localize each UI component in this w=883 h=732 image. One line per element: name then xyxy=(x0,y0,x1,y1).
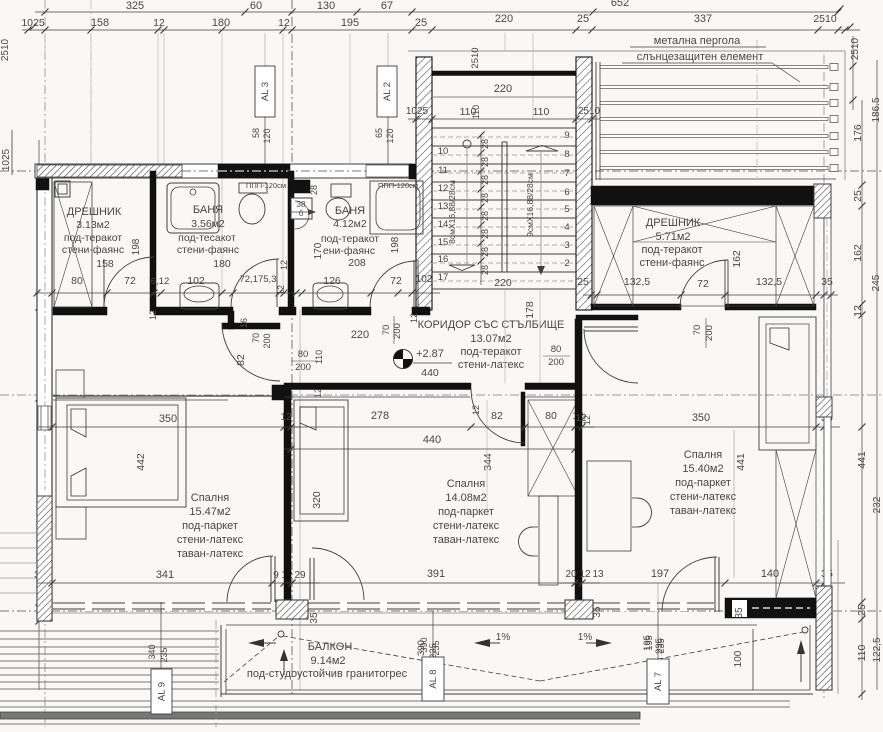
svg-text:200: 200 xyxy=(262,333,272,348)
svg-text:13: 13 xyxy=(592,569,604,580)
svg-text:208: 208 xyxy=(348,257,366,269)
svg-text:278: 278 xyxy=(371,410,389,422)
svg-text:под-теракот: под-теракот xyxy=(460,346,521,358)
svg-text:12: 12 xyxy=(153,17,165,29)
svg-text:8смХ16,88/28см: 8смХ16,88/28см xyxy=(447,180,457,244)
svg-text:35: 35 xyxy=(309,612,320,624)
svg-text:9: 9 xyxy=(564,130,569,141)
svg-text:120: 120 xyxy=(262,128,272,143)
svg-text:442: 442 xyxy=(135,453,147,471)
svg-text:12: 12 xyxy=(471,405,481,415)
svg-text:AL 7: AL 7 xyxy=(653,672,664,691)
svg-text:35: 35 xyxy=(821,276,833,288)
svg-text:6,12: 6,12 xyxy=(151,276,170,287)
svg-text:2510: 2510 xyxy=(578,106,601,117)
svg-text:35: 35 xyxy=(734,607,745,619)
svg-text:70: 70 xyxy=(692,325,703,336)
svg-text:158: 158 xyxy=(91,17,109,29)
svg-text:12: 12 xyxy=(280,412,292,423)
svg-text:67: 67 xyxy=(381,0,393,12)
svg-text:12: 12 xyxy=(148,310,158,320)
svg-text:102: 102 xyxy=(416,274,433,285)
svg-text:652: 652 xyxy=(611,0,629,9)
svg-text:28: 28 xyxy=(480,229,490,239)
svg-text:1%: 1% xyxy=(578,632,593,643)
svg-text:110: 110 xyxy=(471,105,481,119)
svg-text:2: 2 xyxy=(564,258,569,269)
svg-text:220: 220 xyxy=(494,83,512,95)
svg-text:82: 82 xyxy=(491,410,503,422)
svg-text:3.56м2: 3.56м2 xyxy=(191,218,225,230)
svg-text:БАНЯ: БАНЯ xyxy=(193,204,223,216)
svg-text:176: 176 xyxy=(852,124,864,142)
svg-text:390: 390 xyxy=(419,637,429,652)
svg-text:под-теракот: под-теракот xyxy=(641,244,702,256)
svg-text:70: 70 xyxy=(381,325,392,336)
svg-text:337: 337 xyxy=(694,13,712,25)
svg-text:180: 180 xyxy=(212,17,230,29)
svg-text:132,5: 132,5 xyxy=(624,276,650,288)
svg-text:метална пергола: метална пергола xyxy=(654,35,741,47)
svg-text:162: 162 xyxy=(731,250,743,268)
svg-text:80: 80 xyxy=(545,410,557,422)
svg-text:БАЛКОН: БАЛКОН xyxy=(308,641,353,653)
svg-text:б: б xyxy=(299,209,304,218)
svg-text:3: 3 xyxy=(564,240,569,251)
svg-text:28: 28 xyxy=(480,265,490,275)
svg-text:110: 110 xyxy=(533,106,550,118)
svg-text:9смХ16,88/28см: 9смХ16,88/28см xyxy=(525,173,535,237)
svg-text:таван-латекс: таван-латекс xyxy=(177,548,244,560)
svg-text:441: 441 xyxy=(735,453,747,471)
svg-text:2510: 2510 xyxy=(0,38,11,61)
svg-text:таван-латекс: таван-латекс xyxy=(670,505,737,517)
svg-text:200: 200 xyxy=(392,323,403,339)
svg-text:под-тесакот: под-тесакот xyxy=(178,232,236,244)
svg-text:1025: 1025 xyxy=(1,148,12,171)
svg-text:2510: 2510 xyxy=(470,47,481,68)
svg-text:под-паркет: под-паркет xyxy=(182,520,238,532)
svg-text:198: 198 xyxy=(390,236,401,253)
svg-text:235: 235 xyxy=(656,638,666,653)
svg-text:ДРЕШНИК: ДРЕШНИК xyxy=(67,206,122,218)
svg-text:стени-фаянс: стени-фаянс xyxy=(177,244,239,256)
svg-text:БАНЯ: БАНЯ xyxy=(335,205,365,217)
svg-text:25: 25 xyxy=(415,17,427,29)
svg-text:235: 235 xyxy=(159,647,169,662)
svg-text:341: 341 xyxy=(156,569,174,581)
svg-text:195: 195 xyxy=(341,17,359,29)
svg-text:25: 25 xyxy=(577,13,589,25)
svg-text:ППП-120см: ППП-120см xyxy=(246,181,286,190)
svg-text:ДРЕШНИК: ДРЕШНИК xyxy=(646,217,701,229)
svg-text:178: 178 xyxy=(524,301,536,319)
svg-text:25: 25 xyxy=(856,604,868,616)
svg-text:Спалня: Спалня xyxy=(447,478,486,490)
svg-text:70: 70 xyxy=(251,333,261,343)
svg-text:5.71м2: 5.71м2 xyxy=(655,231,690,243)
svg-text:AL 8: AL 8 xyxy=(428,669,439,688)
svg-text:235: 235 xyxy=(431,640,441,655)
svg-text:72: 72 xyxy=(390,275,402,287)
svg-text:132,5: 132,5 xyxy=(756,276,782,288)
svg-text:16: 16 xyxy=(239,318,249,328)
svg-text:3.13м2: 3.13м2 xyxy=(76,219,110,231)
svg-text:под-теракот: под-теракот xyxy=(321,233,379,245)
svg-text:245: 245 xyxy=(871,274,882,291)
svg-text:28: 28 xyxy=(480,193,490,203)
svg-text:под-паркет: под-паркет xyxy=(675,477,731,489)
svg-text:14.08м2: 14.08м2 xyxy=(445,492,486,504)
svg-text:72,175,3: 72,175,3 xyxy=(240,274,277,285)
svg-text:8: 8 xyxy=(564,149,569,160)
svg-text:197: 197 xyxy=(651,568,669,580)
svg-text:80: 80 xyxy=(298,349,309,360)
svg-text:1025: 1025 xyxy=(21,17,45,29)
svg-text:КОРИДОР СЪС СТЪЛБИЩЕ: КОРИДОР СЪС СТЪЛБИЩЕ xyxy=(418,319,565,331)
svg-text:2510: 2510 xyxy=(850,37,861,60)
svg-text:Спалня: Спалня xyxy=(191,492,230,504)
svg-text:12: 12 xyxy=(582,415,592,425)
svg-text:325: 325 xyxy=(126,0,144,12)
svg-text:58: 58 xyxy=(251,128,261,138)
svg-text:7: 7 xyxy=(564,168,569,179)
svg-text:4.12м2: 4.12м2 xyxy=(333,218,367,230)
svg-text:15.40м2: 15.40м2 xyxy=(682,463,723,475)
svg-text:441: 441 xyxy=(856,451,868,469)
svg-text:80: 80 xyxy=(551,344,562,355)
svg-text:стени-фаянс: стени-фаянс xyxy=(62,244,124,256)
svg-text:Спалня: Спалня xyxy=(684,449,723,461)
svg-text:80: 80 xyxy=(71,275,83,287)
svg-text:13.07м2: 13.07м2 xyxy=(470,333,511,345)
svg-text:12: 12 xyxy=(279,260,289,270)
svg-text:20: 20 xyxy=(565,569,577,580)
svg-text:170: 170 xyxy=(313,242,324,259)
svg-text:стени-латекс: стени-латекс xyxy=(177,534,244,546)
svg-text:140: 140 xyxy=(761,568,779,580)
svg-text:25: 25 xyxy=(577,276,589,288)
svg-text:180: 180 xyxy=(213,258,231,270)
svg-text:100: 100 xyxy=(733,650,744,667)
svg-text:350: 350 xyxy=(692,412,710,424)
svg-text:200: 200 xyxy=(704,325,715,341)
svg-text:стени-латекс: стени-латекс xyxy=(433,520,500,532)
svg-text:ени-фаянс: ени-фаянс xyxy=(323,245,375,257)
svg-text:стени-латекс: стени-латекс xyxy=(670,491,737,503)
svg-text:344: 344 xyxy=(482,453,494,471)
svg-text:25: 25 xyxy=(852,190,864,202)
svg-text:391: 391 xyxy=(427,568,445,580)
svg-text:1025: 1025 xyxy=(406,106,429,117)
svg-text:4: 4 xyxy=(564,222,569,233)
svg-text:126: 126 xyxy=(323,275,341,287)
svg-text:110: 110 xyxy=(314,350,324,364)
svg-text:35: 35 xyxy=(592,606,603,618)
svg-text:28: 28 xyxy=(480,175,490,185)
svg-text:12: 12 xyxy=(579,569,591,580)
svg-text:122,5: 122,5 xyxy=(872,637,883,662)
svg-text:440: 440 xyxy=(421,367,439,379)
svg-text:28: 28 xyxy=(309,185,319,195)
svg-text:стени-латекс: стени-латекс xyxy=(458,359,525,371)
svg-text:220: 220 xyxy=(351,329,369,341)
svg-text:232: 232 xyxy=(872,496,883,513)
svg-text:28: 28 xyxy=(480,211,490,221)
svg-text:28: 28 xyxy=(480,247,490,257)
svg-text:102: 102 xyxy=(187,275,205,287)
svg-text:220: 220 xyxy=(494,277,512,289)
svg-text:12: 12 xyxy=(278,17,290,29)
svg-text:под-паркет: под-паркет xyxy=(438,506,494,518)
svg-text:120: 120 xyxy=(385,128,395,143)
svg-text:340: 340 xyxy=(147,644,157,659)
svg-text:слънцезащитен елемент: слънцезащитен елемент xyxy=(637,51,764,63)
svg-text:28: 28 xyxy=(480,157,490,167)
svg-text:200: 200 xyxy=(548,357,564,368)
svg-text:таван-латекс: таван-латекс xyxy=(433,534,500,546)
svg-text:под-студоустойчив гранитогрес: под-студоустойчив гранитогрес xyxy=(247,668,408,680)
svg-text:158: 158 xyxy=(96,258,114,270)
svg-text:10: 10 xyxy=(438,146,449,157)
svg-text:стени-фаянс: стени-фаянс xyxy=(639,257,705,269)
svg-text:350: 350 xyxy=(159,413,177,425)
svg-text:под-теракот: под-теракот xyxy=(64,232,122,244)
svg-text:195: 195 xyxy=(644,635,654,650)
svg-text:110: 110 xyxy=(856,644,868,661)
svg-text:6: 6 xyxy=(564,187,569,198)
svg-text:15.47м2: 15.47м2 xyxy=(189,506,230,518)
svg-text:440: 440 xyxy=(423,434,441,446)
svg-text:220: 220 xyxy=(495,13,513,25)
svg-text:29: 29 xyxy=(294,570,306,581)
svg-text:130: 130 xyxy=(317,0,335,12)
svg-text:186.5: 186.5 xyxy=(871,97,882,122)
svg-text:65: 65 xyxy=(374,128,384,138)
svg-text:60: 60 xyxy=(250,0,262,12)
svg-text:+2.87: +2.87 xyxy=(416,348,444,360)
svg-text:82: 82 xyxy=(235,354,247,366)
svg-text:5: 5 xyxy=(564,204,569,215)
svg-text:AL 2: AL 2 xyxy=(382,82,393,101)
svg-text:12: 12 xyxy=(852,305,864,317)
svg-text:72: 72 xyxy=(124,275,136,287)
svg-text:1%: 1% xyxy=(496,632,511,643)
svg-text:2510: 2510 xyxy=(813,13,837,25)
svg-text:AL 9: AL 9 xyxy=(157,682,168,701)
svg-text:9.14м2: 9.14м2 xyxy=(310,655,345,667)
svg-text:200: 200 xyxy=(295,362,311,373)
svg-text:320: 320 xyxy=(311,491,323,509)
svg-text:28: 28 xyxy=(480,139,490,149)
svg-text:16: 16 xyxy=(438,254,449,265)
svg-text:17: 17 xyxy=(438,272,449,283)
svg-text:12: 12 xyxy=(409,313,419,323)
svg-text:AL 3: AL 3 xyxy=(260,82,271,101)
svg-text:12: 12 xyxy=(276,285,286,295)
svg-text:198: 198 xyxy=(131,238,142,255)
svg-text:11: 11 xyxy=(438,165,448,176)
svg-text:162: 162 xyxy=(852,244,864,262)
svg-text:9: 9 xyxy=(273,570,279,581)
svg-text:72: 72 xyxy=(697,278,709,290)
